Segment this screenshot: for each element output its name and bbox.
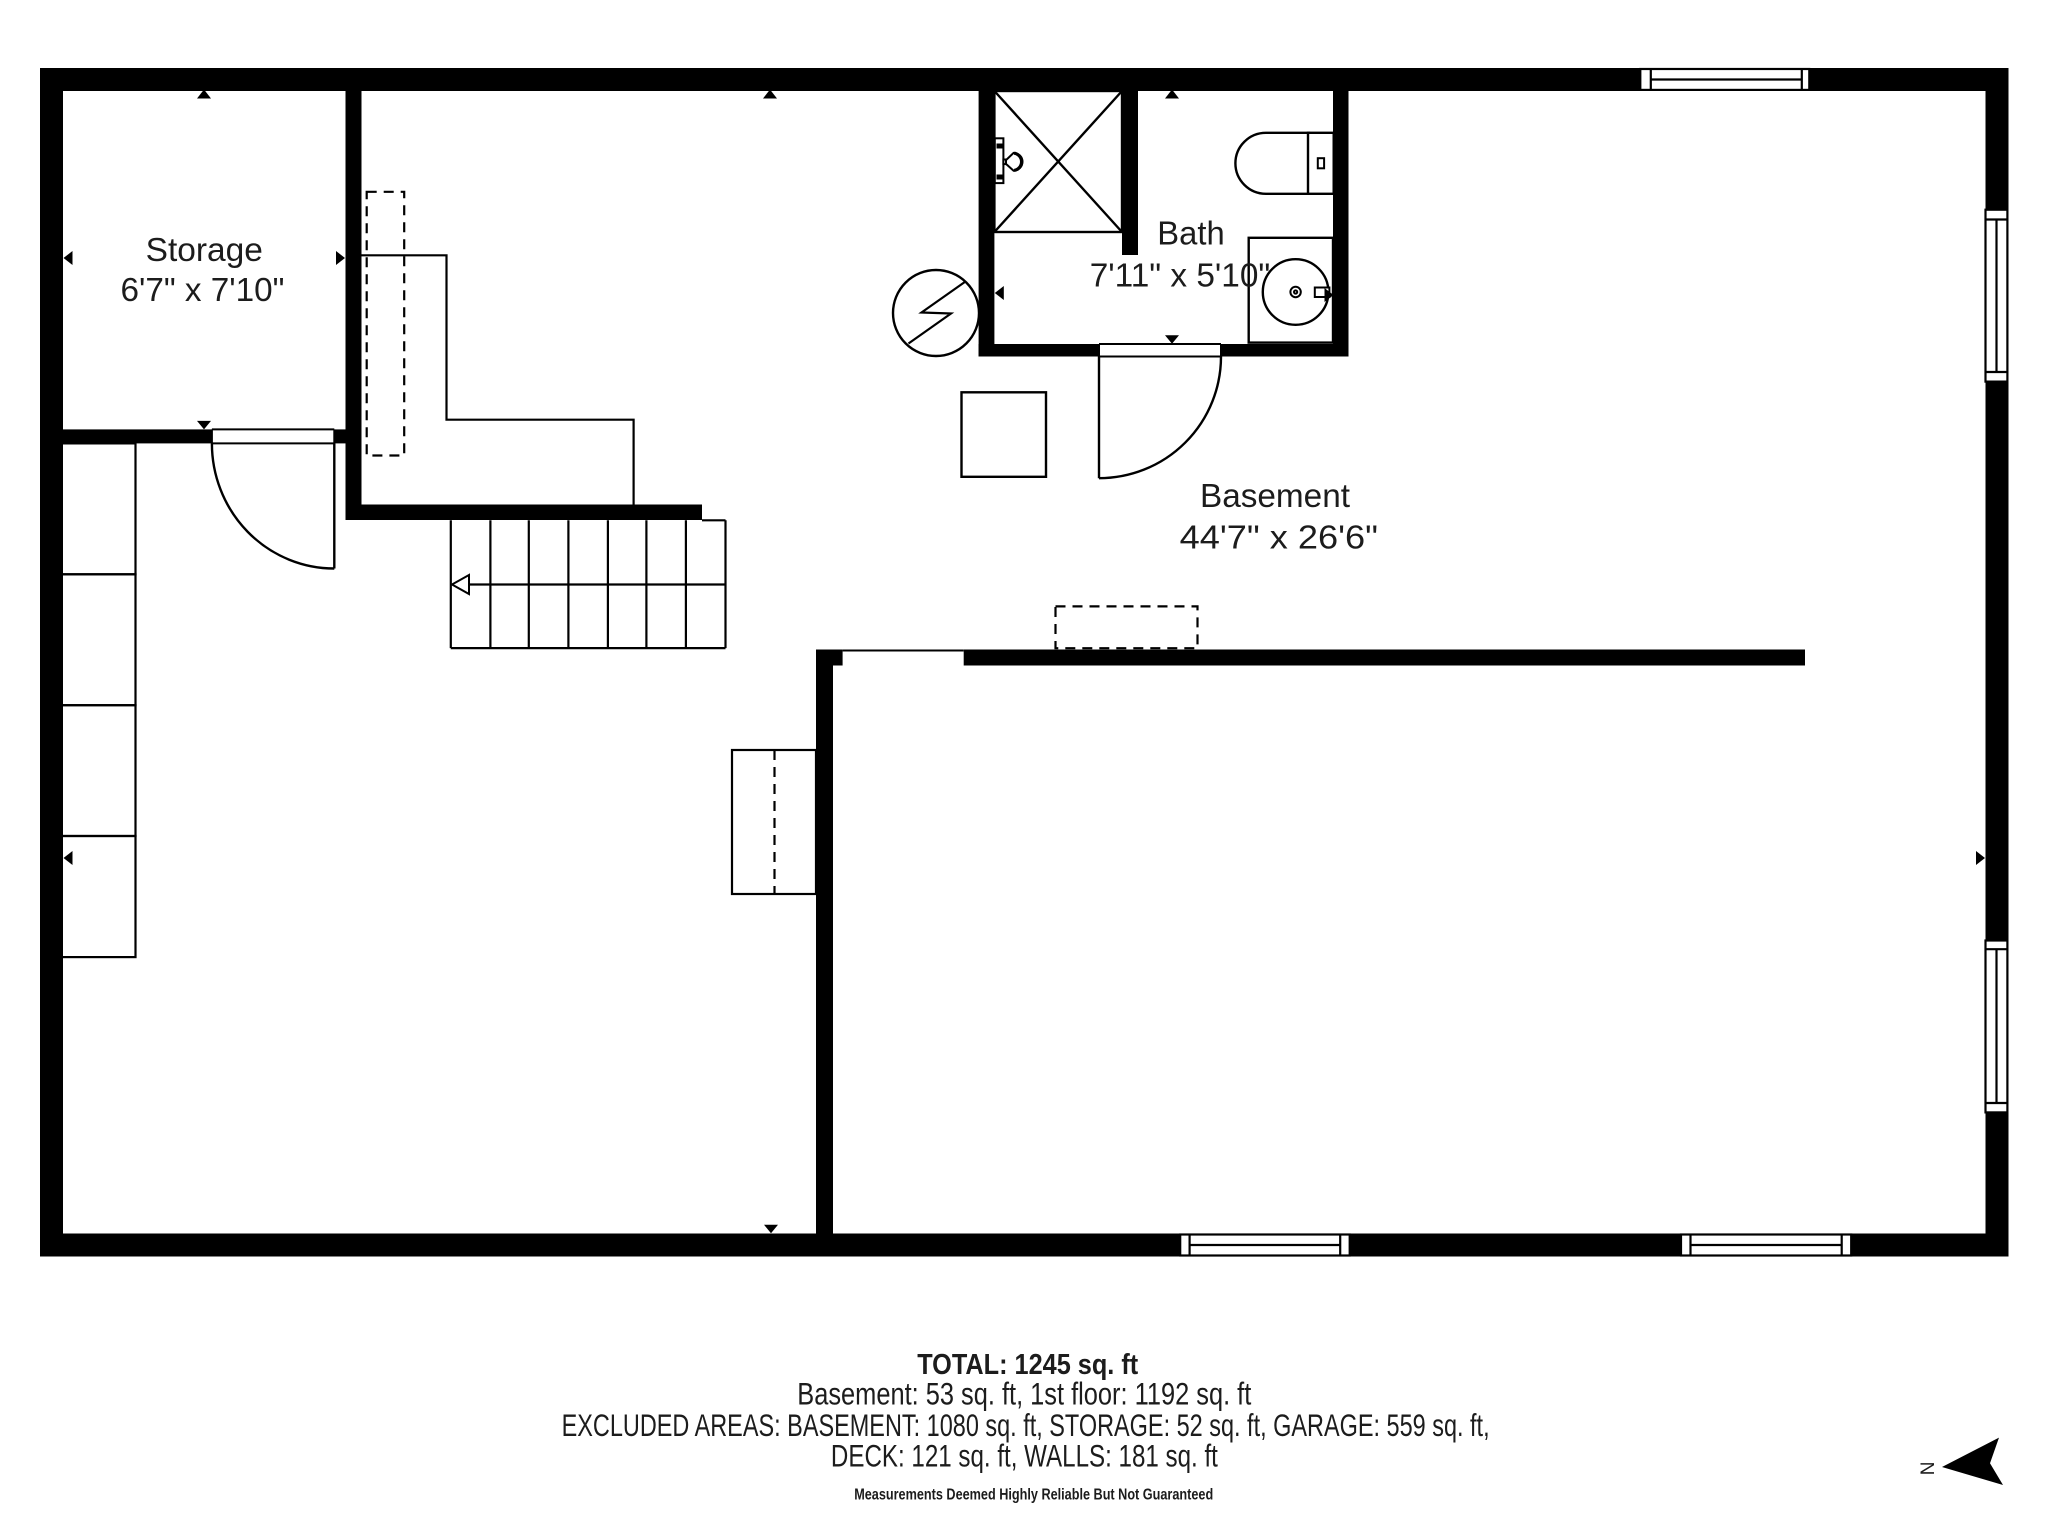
svg-text:Basement: Basement [1200,478,1351,515]
svg-text:Bath: Bath [1157,216,1224,253]
svg-text:44'7" x 26'6": 44'7" x 26'6" [1180,520,1378,557]
svg-text:6'7" x 7'10": 6'7" x 7'10" [121,272,285,309]
svg-text:N: N [1918,1462,1939,1476]
svg-text:Storage: Storage [146,232,263,269]
svg-text:Measurements Deemed Highly Rel: Measurements Deemed Highly Reliable But … [854,1487,1213,1504]
svg-text:DECK: 121 sq. ft, WALLS: 181 s: DECK: 121 sq. ft, WALLS: 181 sq. ft [831,1438,1218,1474]
svg-text:7'11" x 5'10": 7'11" x 5'10" [1090,258,1271,295]
